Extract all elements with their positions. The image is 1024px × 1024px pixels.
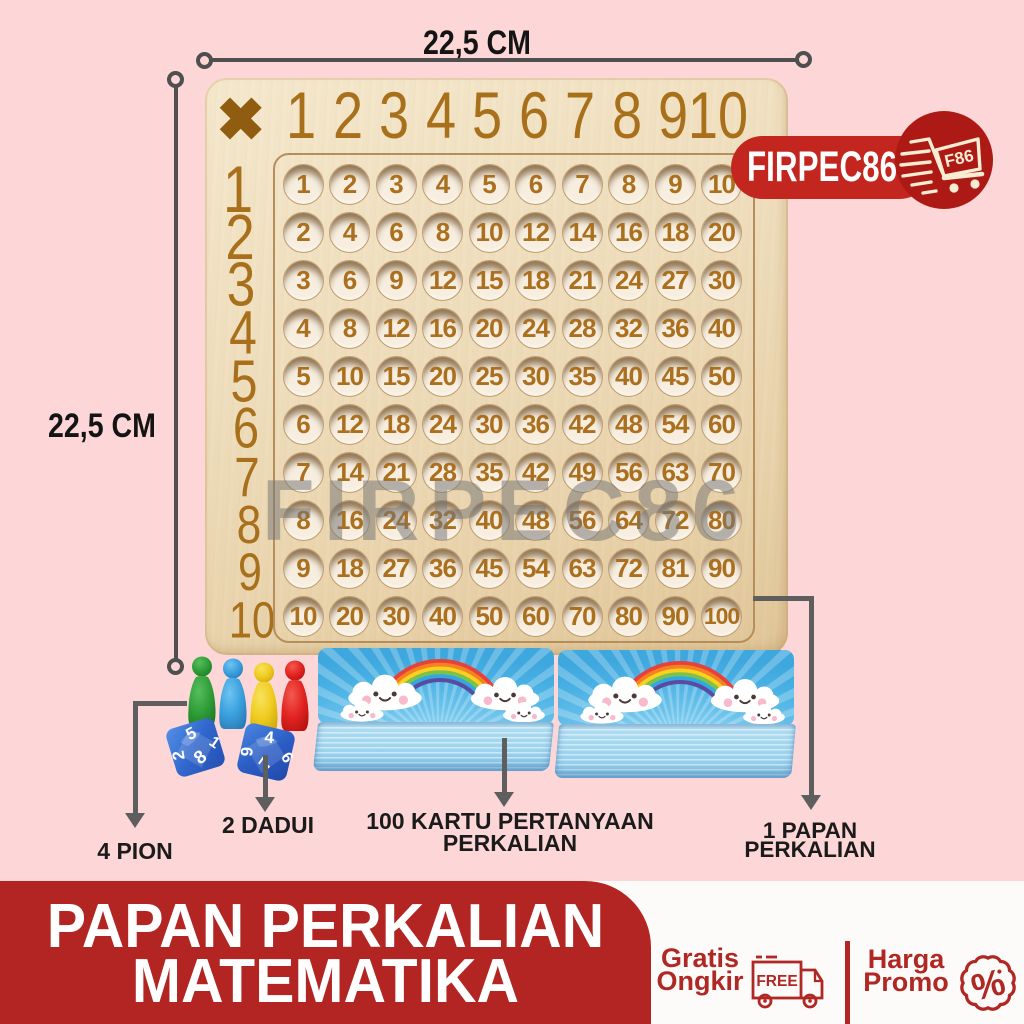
- svg-text:FREE: FREE: [756, 973, 797, 990]
- svg-text:F86: F86: [943, 146, 976, 171]
- svg-text:%: %: [967, 960, 1009, 1009]
- svg-text:9: 9: [237, 746, 256, 756]
